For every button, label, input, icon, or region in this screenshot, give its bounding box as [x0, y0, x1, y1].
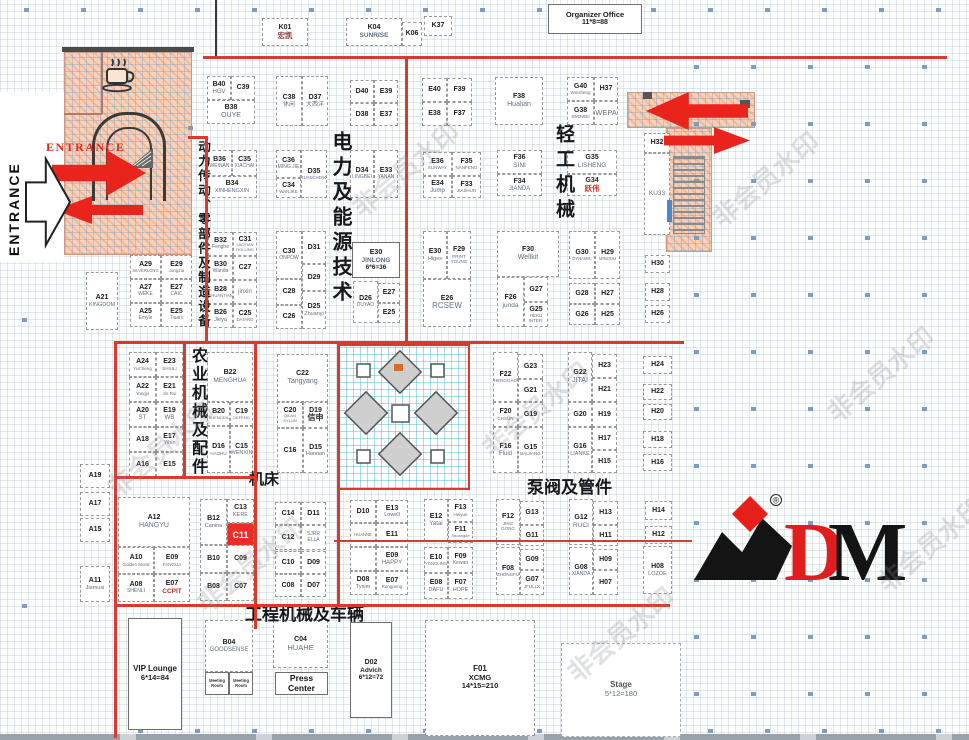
booth-f09[interactable]: F09Kewan	[448, 547, 473, 573]
booth-code: F16	[499, 443, 511, 451]
booth-a22[interactable]: A22Yongyi	[129, 377, 156, 402]
booth-h11[interactable]: H11	[593, 525, 618, 546]
booth-f37[interactable]: F37	[447, 102, 472, 126]
grid-dot	[751, 236, 756, 240]
booth-k06[interactable]: K06	[402, 22, 422, 46]
booth-h29[interactable]: H29MINGDU	[595, 231, 620, 279]
booth-e29[interactable]: E29Jongzta	[161, 255, 192, 279]
booth-d31[interactable]: D31	[302, 231, 326, 264]
booth-code: C10	[282, 559, 295, 567]
booth-wepa[interactable]: WEPA	[594, 101, 618, 125]
booth-e30[interactable]: E30Higes	[423, 231, 447, 279]
booth-e33[interactable]: E33YANAN	[374, 150, 398, 198]
booth-code: K04	[368, 24, 381, 32]
booth-sjrr-ella[interactable]: SJRR ELLA	[301, 525, 326, 550]
grid-dot	[865, 179, 870, 183]
booth-name: Higes	[428, 256, 442, 262]
booth-ku33[interactable]: KU33	[644, 153, 670, 235]
booth-b10[interactable]: B10	[200, 545, 227, 573]
booth-name: CHSUN	[497, 416, 513, 421]
booth-f39[interactable]: F39	[447, 78, 472, 102]
booth-g19[interactable]: G19	[518, 402, 543, 427]
booth-h16[interactable]: H16	[643, 454, 672, 471]
booth-code: E37	[380, 111, 392, 119]
booth-name: SUNRISE	[360, 32, 389, 39]
booth-c07[interactable]: C07	[227, 573, 254, 601]
exit-arrow-left-icon	[646, 92, 748, 130]
booth-name: XINHENGXIN	[215, 188, 249, 194]
booth-name: SHENLI	[127, 589, 145, 595]
booth-g25[interactable]: G25HEKU INTER.	[524, 302, 548, 327]
booth-code: C09	[234, 555, 247, 563]
booth-name: LOZOE	[648, 571, 667, 577]
booth-name: SHIULI	[162, 366, 177, 371]
grid-dot	[694, 407, 699, 411]
booth-h15[interactable]: H15	[592, 450, 617, 473]
booth-f34[interactable]: F34JIANDA	[497, 174, 542, 196]
grid-dot	[865, 293, 870, 297]
booth-code: K37	[432, 22, 445, 30]
booth-code: E15	[163, 461, 175, 469]
booth-f12[interactable]: F12JING GONG	[496, 499, 520, 545]
booth-code: A24	[136, 358, 149, 366]
booth-c30[interactable]: C30ONPOW	[276, 231, 302, 279]
grid-dot	[252, 8, 257, 12]
booth-c08[interactable]: C08	[275, 574, 301, 597]
booth-code: C14	[282, 510, 295, 518]
booth-e09[interactable]: E09FANGUA	[154, 547, 190, 574]
booth-g11[interactable]: G11	[520, 525, 544, 546]
booth-organizer-office[interactable]: Organizer Office11*8=88	[548, 4, 642, 34]
booth-h24[interactable]: H24	[643, 356, 672, 374]
booth-a11[interactable]: A11Jiamusi	[80, 566, 110, 602]
booth-jinxin[interactable]: jinxin	[233, 280, 257, 304]
booth-code: C12	[282, 534, 295, 542]
label-agricultural-machinery: 农业机械及配件	[185, 347, 209, 477]
booth-g38[interactable]: G38SNOWEI	[567, 101, 594, 125]
booth-name: HUAHE	[287, 644, 313, 652]
booth-d19[interactable]: D19信申	[303, 402, 328, 428]
booth-a24[interactable]: A24YuCheng	[129, 352, 156, 377]
booth-a08[interactable]: A08SHENLI	[118, 574, 154, 602]
booth-a25[interactable]: A25Emyle	[130, 303, 161, 327]
booth-f33[interactable]: F33JIASHUN	[452, 176, 481, 198]
booth-code: A18	[136, 436, 149, 444]
booth-c13[interactable]: C13KERE	[227, 499, 254, 523]
booth-e19[interactable]: E19WB	[156, 402, 183, 427]
booth-e25[interactable]: E25Tiuarc	[161, 303, 192, 327]
booth-h07[interactable]: H07	[593, 570, 618, 595]
booth-h13[interactable]: H13	[593, 501, 618, 525]
booth-a17[interactable]: A17	[80, 492, 110, 516]
booth-c22[interactable]: C22Tangyang	[277, 354, 328, 402]
booth-h30[interactable]: H30	[645, 255, 670, 273]
booth-code: G11	[526, 532, 539, 540]
booth-g12[interactable]: G12RUCI	[569, 499, 593, 545]
booth-name: JINLONG	[362, 257, 391, 264]
booth-c36[interactable]: C36MING JIE	[276, 150, 301, 178]
booth-k04[interactable]: K04SUNRISE	[346, 18, 402, 46]
booth-code: F07	[454, 579, 466, 587]
grid-dot	[751, 692, 756, 696]
booth-name: SHENGDA	[209, 416, 229, 420]
booth-d40[interactable]: D40	[350, 80, 374, 103]
booth-c26[interactable]: C26	[276, 305, 302, 329]
booth-150[interactable]	[350, 547, 376, 571]
booth-code: A11	[89, 577, 101, 585]
booth-stage[interactable]: Stage5*12=180	[561, 643, 681, 737]
booth-name: JIASHUN	[457, 188, 476, 193]
booth-f07[interactable]: F07HOPE	[448, 573, 473, 599]
booth-a10[interactable]: A10Golden Moral	[118, 547, 154, 574]
booth-d25[interactable]: D25Zhuanyi	[302, 291, 326, 329]
booth-h26[interactable]: H26	[645, 305, 670, 323]
booth-f35[interactable]: F35NANFENG	[452, 152, 481, 176]
booth-c10[interactable]: C10	[275, 551, 301, 574]
section-boundary-line	[188, 136, 207, 139]
entrance-side-label: ENTRANCE	[6, 144, 22, 256]
booth-c31[interactable]: C31LAOTIAN ROLLING	[233, 232, 257, 256]
booth-c14[interactable]: C14	[275, 502, 301, 525]
booth-code: F26	[504, 294, 516, 302]
booth-d08[interactable]: D08Tysim	[350, 571, 376, 595]
grid-dot	[188, 126, 193, 130]
booth-code: D38	[356, 111, 369, 119]
booth-e37[interactable]: E37	[374, 103, 398, 126]
booth-e30[interactable]: E30JINLONG6*6=36	[352, 242, 400, 278]
booth-g23[interactable]: G23	[518, 354, 543, 379]
booth-c20[interactable]: C20QILAN SYLUN	[277, 402, 303, 428]
grid-dot	[865, 350, 870, 354]
booth-f38[interactable]: F38Hualian	[495, 77, 543, 125]
booth-e27[interactable]: E27CAIC	[161, 279, 192, 303]
booth-b12[interactable]: B12Canina	[200, 499, 227, 545]
booth-k01[interactable]: K01宏凯	[262, 18, 308, 46]
booth-a18[interactable]: A18	[129, 427, 156, 452]
booth-d10[interactable]: D10	[350, 500, 376, 523]
booth-h22[interactable]: H22	[643, 384, 672, 400]
booth-c15[interactable]: C15WENXIN	[230, 426, 253, 473]
booth-name: Meeting Room	[206, 679, 228, 688]
booth-code: G27	[529, 286, 542, 294]
booth-name: HAPPY	[382, 560, 402, 567]
grid-dot	[865, 407, 870, 411]
booth-e36[interactable]: E36SUNWAY	[423, 152, 452, 176]
booth-b34[interactable]: B34XINHENGXIN	[207, 176, 257, 198]
booth-h08[interactable]: H08LOZOE	[643, 546, 672, 594]
booth-code: H26	[651, 310, 664, 318]
grid-dot	[808, 407, 813, 411]
booth-name: WEPA	[595, 109, 617, 117]
booth-f29[interactable]: F29PRINT YOUNG	[447, 231, 471, 279]
booth-f26[interactable]: F26junda	[497, 277, 524, 327]
booth-a12[interactable]: A12HANGYU	[118, 497, 190, 547]
booth-name: MENGHUA	[213, 377, 246, 384]
booth-b40[interactable]: B40HGV	[207, 76, 231, 100]
booth-name: WENXIN	[231, 450, 253, 456]
section-boundary-line	[114, 604, 670, 607]
booth-c34[interactable]: C34WANJKE	[276, 178, 301, 198]
grid-dot	[865, 65, 870, 69]
booth-g30[interactable]: G30DYNAMIC	[569, 231, 595, 279]
booth-d02[interactable]: D02Advich6*12=72	[350, 622, 392, 718]
booth-code: H24	[651, 361, 664, 369]
booth-h18[interactable]: H18	[643, 431, 672, 448]
section-boundary-line	[337, 344, 340, 607]
booth-c11[interactable]: C11	[227, 523, 254, 547]
exit-arrow-right-icon	[664, 127, 750, 154]
booth-d07[interactable]: D07	[301, 574, 326, 597]
booth-e38[interactable]: E38	[422, 102, 447, 126]
booth-e07[interactable]: E07Rongpeng	[376, 571, 408, 595]
booth-code: F34	[513, 178, 525, 186]
booth-name: LISHENG	[578, 162, 607, 169]
booth-name: HGV	[212, 89, 225, 96]
booth-code: A22	[136, 383, 149, 391]
label-light-industry-machinery: 轻工机械	[550, 124, 577, 224]
booth-code: H14	[652, 507, 665, 515]
booth-f30[interactable]: F30Wellkit	[497, 231, 559, 277]
booth-c16[interactable]: C16	[277, 428, 303, 473]
booth-h27[interactable]: H27	[595, 283, 620, 304]
booth-e11[interactable]: E11	[376, 523, 408, 547]
booth-e09[interactable]: E09HAPPY	[376, 547, 408, 571]
booth-name: GUANCHENG	[301, 176, 327, 181]
booth-code: G09	[525, 556, 538, 564]
booth-huanne[interactable]: HUANNE	[350, 523, 376, 547]
booth-vip-lounge[interactable]: VIP Lounge6*14=84	[128, 618, 182, 730]
booth-code: B38	[225, 104, 238, 112]
booth-d29[interactable]: D29	[302, 264, 326, 291]
booth-a27[interactable]: A27WEKE	[130, 279, 161, 303]
booth-name: OUYE	[221, 112, 241, 120]
booth-e07[interactable]: E07CCPIT	[154, 574, 190, 602]
booth-a20[interactable]: A20ST	[129, 402, 156, 427]
booth-code: C26	[283, 313, 296, 321]
booth-c09[interactable]: C09	[227, 545, 254, 573]
booth-name: SUNWAY	[428, 165, 447, 170]
booth-b22[interactable]: B22MENGHUA	[207, 352, 253, 402]
booth-e26[interactable]: E26RCSEW	[423, 279, 471, 327]
booth-code: H07	[599, 579, 612, 587]
booth-press-center[interactable]: Press Center	[275, 672, 328, 695]
grid-dot	[865, 692, 870, 696]
booth-d09[interactable]: D09	[301, 551, 326, 574]
booth-c39[interactable]: C39	[231, 76, 255, 100]
booth-c28[interactable]: C28	[276, 279, 302, 305]
booth-g27[interactable]: G27	[524, 277, 548, 302]
booth-b08[interactable]: B08	[200, 573, 227, 601]
booth-name: BAIJIANG	[520, 451, 541, 456]
booth-g26[interactable]: G26	[569, 304, 595, 325]
grid-dot	[922, 521, 927, 525]
booth-k37[interactable]: K37	[424, 16, 452, 36]
booth-d35[interactable]: D35GUANCHENG	[301, 150, 327, 198]
booth-code: E40	[428, 86, 440, 94]
booth-code: E19	[163, 407, 175, 415]
booth-e17[interactable]: E17Yibin	[156, 427, 183, 452]
booth-name: SILVERLONG	[132, 269, 158, 274]
booth-b20[interactable]: B20SHENGDA	[207, 402, 230, 426]
booth-g20[interactable]: G20	[568, 402, 592, 427]
booth-meeting-room[interactable]: Meeting Room	[205, 672, 229, 695]
booth-name: Rongpeng	[382, 584, 403, 589]
grid-dot	[22, 604, 27, 608]
booth-code: G26	[575, 311, 588, 319]
booth-code: F39	[453, 86, 465, 94]
booth-f36[interactable]: F36SINI	[497, 150, 542, 174]
booth-code: E23	[163, 358, 175, 366]
grid-dot	[480, 8, 485, 12]
booth-a16[interactable]: A16	[129, 452, 156, 477]
booth-g16[interactable]: G16LIANKE	[568, 427, 592, 473]
booth-code: D08	[357, 576, 370, 584]
booth-g13[interactable]: G13	[520, 501, 544, 525]
booth-b38[interactable]: B38OUYE	[207, 100, 255, 124]
booth-h37[interactable]: H37	[594, 77, 618, 101]
booth-name: Yibin	[163, 440, 175, 446]
booth-code: D16	[212, 443, 225, 451]
grid-dot	[751, 179, 756, 183]
booth-e12[interactable]: E12Yatai	[424, 499, 448, 541]
booth-h09[interactable]: H09	[593, 549, 618, 570]
booth-name: 大西洋	[306, 102, 324, 109]
booth-meeting-room[interactable]: Meeting Room	[229, 672, 253, 695]
booth-d11[interactable]: D11	[301, 502, 326, 525]
booth-e27[interactable]: E27	[378, 283, 400, 303]
booth-code: E07	[166, 580, 178, 588]
booth-name: LAOTIAN ROLLING	[234, 243, 256, 252]
booth-code: C39	[237, 84, 250, 92]
booth-name: KERE	[233, 512, 248, 518]
booth-code: A12	[148, 514, 161, 522]
booth-f20[interactable]: F20CHSUN	[493, 402, 518, 427]
booth-g09[interactable]: G09	[520, 549, 544, 570]
booth-e10[interactable]: E10YONGLING	[424, 547, 448, 573]
booth-e08[interactable]: E08DAFU	[424, 573, 448, 599]
booth-a29[interactable]: A29SILVERLONG	[130, 255, 161, 279]
booth-g22[interactable]: G22JITAI	[568, 352, 592, 402]
booth-h25[interactable]: H25	[595, 304, 620, 325]
booth-g08[interactable]: G08XIANDA	[569, 547, 593, 595]
booth-code: G28	[575, 290, 588, 298]
section-boundary-line	[114, 341, 684, 344]
grid-dot	[366, 8, 371, 12]
booth-h17[interactable]: H17	[592, 427, 617, 450]
booth-a21[interactable]: A21KINGDOM	[86, 272, 118, 330]
booth-e23[interactable]: E23SHIULI	[156, 352, 183, 377]
booth-g28[interactable]: G28	[569, 283, 595, 304]
booth-f13[interactable]: F13Heiyue	[448, 499, 473, 522]
booth-code: F29	[453, 246, 465, 254]
booth-name: Jin Rui	[163, 391, 177, 396]
booth-name: DAFU	[429, 587, 444, 593]
booth-e15[interactable]: E15	[156, 452, 183, 477]
grid-dot	[694, 350, 699, 354]
grid-dot	[708, 8, 713, 12]
booth-name: HOPE	[453, 587, 469, 593]
booth-a15[interactable]: A15	[80, 518, 110, 542]
booth-f01[interactable]: F01XCMG14*15=210	[425, 620, 535, 736]
booth-name: Wellkit	[518, 254, 538, 262]
booth-name: Shuangde	[451, 534, 469, 538]
booth-f16[interactable]: F16Fluid	[493, 427, 518, 473]
grid-dot	[922, 407, 927, 411]
grid-dot	[537, 729, 542, 733]
booth-g07[interactable]: G07JFULLX	[520, 570, 544, 595]
booth-h19[interactable]: H19	[592, 402, 617, 427]
booth-h20[interactable]: H20	[643, 404, 672, 420]
booth-a19[interactable]: A19	[80, 464, 110, 488]
booth-d26[interactable]: D26DUYAO	[353, 281, 378, 323]
booth-c12[interactable]: C12	[275, 525, 301, 550]
grid-dot	[879, 729, 884, 733]
booth-name: junda	[503, 302, 519, 309]
booth-e21[interactable]: E21Jin Rui	[156, 377, 183, 402]
booth-h21[interactable]: H21	[592, 378, 617, 402]
section-boundary-line	[334, 540, 692, 542]
booth-code: F22	[499, 371, 511, 379]
booth-g40[interactable]: G40Weisheng	[567, 77, 594, 101]
booth-name: YONGLING	[425, 562, 447, 567]
booth-h23[interactable]: H23	[592, 354, 617, 378]
booth-g15[interactable]: G15BAIJIANG	[518, 427, 543, 473]
booth-code: B08	[207, 583, 220, 591]
booth-code: E12	[430, 513, 442, 521]
booth-h28[interactable]: H28	[645, 283, 670, 301]
booth-name: Jieya	[214, 317, 227, 323]
booth-c19[interactable]: C19DEFENG	[230, 402, 253, 426]
booth-b04[interactable]: B04GOODSENSE	[205, 620, 253, 672]
grid-dot	[252, 729, 257, 733]
booth-d37[interactable]: D37大西洋	[302, 76, 328, 126]
booth-c35[interactable]: C35XIACHAI	[232, 150, 257, 176]
booth-c38[interactable]: C38休闲	[276, 76, 302, 126]
booth-f08[interactable]: F08ZHONGFU	[496, 547, 520, 595]
booth-c04[interactable]: C04HUAHE	[273, 620, 328, 668]
booth-code: E21	[163, 383, 175, 391]
booth-h14[interactable]: H14	[645, 501, 672, 520]
booth-name: 跃伟	[585, 185, 600, 193]
booth-code: B10	[207, 555, 220, 563]
booth-e34[interactable]: E34Jump	[423, 176, 452, 198]
booth-c27[interactable]: C27	[233, 256, 257, 280]
grid-dot	[865, 464, 870, 468]
booth-code: B26	[214, 309, 227, 317]
booth-c25[interactable]: C25DATANG	[233, 304, 257, 328]
booth-e13[interactable]: E13Lowell	[376, 500, 408, 523]
escalator-steps	[673, 156, 705, 234]
booth-g21[interactable]: G21	[518, 379, 543, 402]
booth-code: H09	[599, 556, 612, 564]
grid-dot	[808, 464, 813, 468]
booth-d16[interactable]: D16HAOHU	[207, 426, 230, 473]
booth-e39[interactable]: E39	[374, 80, 398, 103]
booth-name: Heiyue	[453, 512, 467, 517]
booth-name: Yatai	[429, 521, 442, 528]
booth-d38[interactable]: D38	[350, 103, 374, 126]
entrance-top-wall	[62, 47, 194, 52]
booth-f22[interactable]: F22HENGGAO	[493, 352, 518, 402]
booth-name: XIACHAI	[234, 164, 254, 170]
label-electric-power-energy: 电力及能源技术	[326, 131, 355, 306]
booth-code: C11	[232, 530, 248, 540]
booth-size: 14*15=210	[462, 682, 499, 690]
booth-d15[interactable]: D15Hannan	[303, 428, 328, 473]
booth-e40[interactable]: E40	[422, 78, 447, 102]
booth-e25[interactable]: E25	[378, 303, 400, 323]
grid-dot	[138, 8, 143, 12]
